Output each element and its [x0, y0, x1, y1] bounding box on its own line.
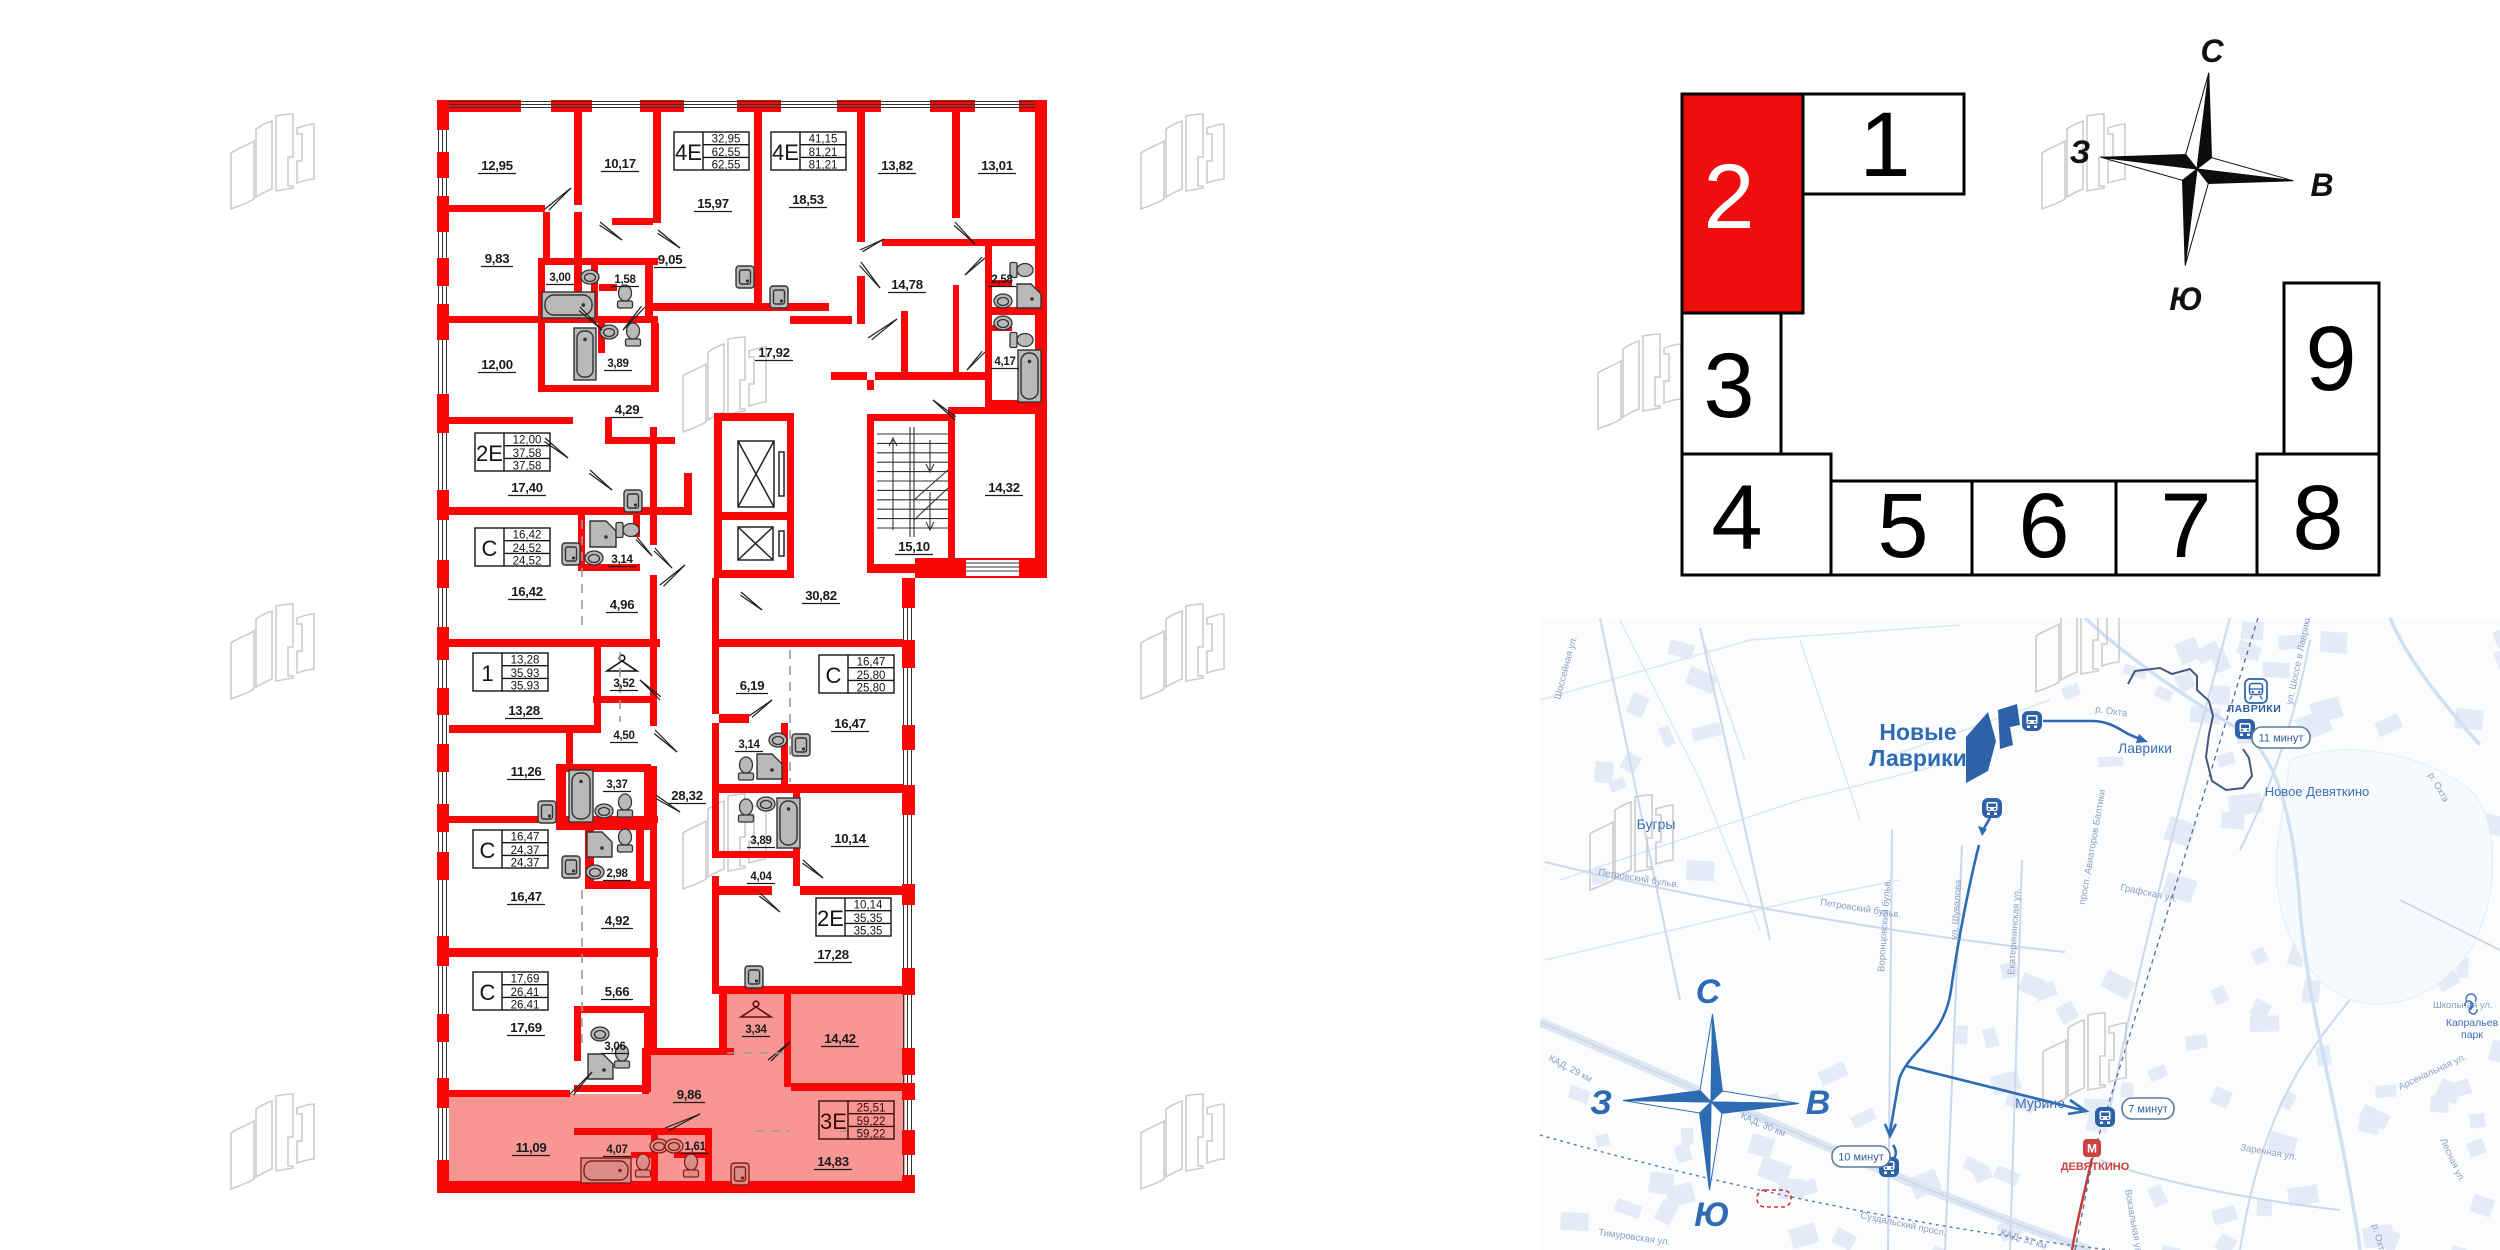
svg-text:9: 9 [2305, 308, 2356, 410]
svg-text:16,47: 16,47 [510, 889, 542, 904]
svg-text:7: 7 [2160, 475, 2211, 577]
svg-text:37,58: 37,58 [513, 448, 542, 460]
svg-text:З: З [2070, 134, 2091, 170]
svg-text:Новые: Новые [1879, 719, 1956, 745]
svg-text:13,28: 13,28 [511, 655, 540, 667]
svg-text:16,47: 16,47 [834, 716, 866, 731]
svg-text:17,69: 17,69 [511, 974, 540, 986]
svg-text:16,42: 16,42 [513, 530, 542, 542]
svg-text:13,01: 13,01 [981, 158, 1013, 173]
svg-text:3,37: 3,37 [606, 779, 627, 791]
svg-text:2: 2 [1703, 146, 1754, 248]
svg-text:С: С [480, 838, 496, 863]
svg-text:Школьная ул.: Школьная ул. [2433, 1000, 2493, 1011]
svg-text:З: З [1590, 1084, 1612, 1122]
svg-text:26,41: 26,41 [511, 987, 540, 999]
svg-text:С: С [480, 980, 496, 1005]
svg-text:13,82: 13,82 [881, 158, 913, 173]
svg-text:4,04: 4,04 [750, 871, 772, 883]
svg-text:5: 5 [1877, 475, 1928, 577]
svg-text:Бугры: Бугры [1637, 816, 1676, 832]
svg-text:1: 1 [481, 661, 493, 686]
svg-text:11,26: 11,26 [511, 764, 542, 779]
svg-text:35,35: 35,35 [854, 913, 883, 925]
svg-text:24,37: 24,37 [511, 845, 540, 857]
svg-text:3,14: 3,14 [738, 739, 760, 751]
svg-text:3Е: 3Е [820, 1109, 847, 1134]
svg-text:3,52: 3,52 [613, 678, 634, 690]
svg-text:18,53: 18,53 [792, 192, 824, 207]
svg-text:1,61: 1,61 [684, 1141, 706, 1153]
svg-text:6: 6 [2018, 475, 2069, 577]
svg-text:24,37: 24,37 [511, 858, 540, 870]
svg-text:2Е: 2Е [817, 906, 844, 931]
svg-text:41,15: 41,15 [809, 134, 838, 146]
svg-text:Мурино: Мурино [2015, 1095, 2065, 1111]
svg-text:14,83: 14,83 [817, 1154, 849, 1169]
svg-text:4,92: 4,92 [605, 913, 629, 928]
svg-text:14,42: 14,42 [824, 1031, 856, 1046]
svg-text:3,00: 3,00 [549, 272, 570, 284]
svg-text:4: 4 [1711, 467, 1762, 569]
svg-text:62,55: 62,55 [712, 160, 741, 172]
svg-text:М: М [2087, 1142, 2097, 1156]
svg-text:2,98: 2,98 [606, 868, 628, 880]
svg-text:9,86: 9,86 [677, 1087, 701, 1102]
svg-text:С: С [1696, 973, 1721, 1011]
svg-text:37,58: 37,58 [513, 461, 542, 473]
svg-text:32,95: 32,95 [712, 134, 741, 146]
svg-text:2Е: 2Е [476, 441, 503, 466]
svg-text:15,10: 15,10 [898, 539, 930, 554]
svg-text:3: 3 [1703, 335, 1754, 437]
svg-text:14,78: 14,78 [891, 277, 923, 292]
svg-text:12,95: 12,95 [481, 158, 513, 173]
svg-text:4Е: 4Е [675, 140, 702, 165]
svg-text:4,17: 4,17 [994, 356, 1015, 368]
svg-text:35,93: 35,93 [511, 681, 540, 693]
svg-text:ЛАВРИКИ: ЛАВРИКИ [2227, 703, 2282, 715]
svg-text:24,52: 24,52 [513, 556, 542, 568]
svg-text:81,21: 81,21 [809, 160, 838, 172]
svg-text:С: С [826, 663, 842, 688]
svg-text:6,19: 6,19 [740, 678, 764, 693]
svg-text:4Е: 4Е [772, 140, 799, 165]
svg-text:16,47: 16,47 [857, 657, 886, 669]
svg-text:4,50: 4,50 [613, 730, 634, 742]
svg-text:парк: парк [2461, 1029, 2483, 1041]
svg-text:10,14: 10,14 [834, 831, 866, 846]
svg-text:В: В [2310, 167, 2333, 203]
svg-text:Капральев: Капральев [2446, 1017, 2499, 1029]
svg-text:3,89: 3,89 [750, 835, 771, 847]
svg-text:4,96: 4,96 [610, 597, 634, 612]
svg-text:12,00: 12,00 [481, 357, 513, 372]
svg-text:2,58: 2,58 [991, 274, 1013, 286]
svg-text:12,00: 12,00 [513, 435, 542, 447]
svg-text:1,58: 1,58 [614, 274, 636, 286]
svg-text:25,80: 25,80 [857, 683, 886, 695]
svg-text:14,32: 14,32 [988, 480, 1020, 495]
svg-text:24,52: 24,52 [513, 543, 542, 555]
svg-text:13,28: 13,28 [508, 703, 540, 718]
svg-text:Ю: Ю [2169, 281, 2202, 317]
svg-text:16,47: 16,47 [511, 832, 540, 844]
svg-text:10,17: 10,17 [604, 156, 636, 171]
svg-text:17,69: 17,69 [510, 1020, 542, 1035]
svg-text:С: С [2200, 33, 2224, 69]
svg-text:26,41: 26,41 [511, 1000, 540, 1012]
svg-text:30,82: 30,82 [805, 588, 837, 603]
svg-text:8: 8 [2292, 467, 2343, 569]
svg-text:3,14: 3,14 [611, 554, 633, 566]
svg-text:17,92: 17,92 [758, 345, 790, 360]
svg-text:4,29: 4,29 [615, 402, 639, 417]
svg-text:81,21: 81,21 [809, 147, 838, 159]
svg-text:3,34: 3,34 [745, 1024, 767, 1036]
svg-text:9,05: 9,05 [658, 252, 682, 267]
svg-text:Лаврики: Лаврики [2118, 740, 2172, 756]
svg-text:35,35: 35,35 [854, 926, 883, 938]
svg-text:Ю: Ю [1694, 1196, 1729, 1234]
svg-text:В: В [1806, 1084, 1831, 1122]
svg-text:3,89: 3,89 [607, 358, 628, 370]
svg-text:17,40: 17,40 [511, 480, 543, 495]
svg-text:9,83: 9,83 [485, 251, 509, 266]
svg-text:7 минут: 7 минут [2128, 1104, 2168, 1116]
svg-text:25,51: 25,51 [857, 1103, 886, 1115]
svg-text:62,55: 62,55 [712, 147, 741, 159]
svg-text:С: С [482, 536, 498, 561]
svg-text:Лаврики: Лаврики [1869, 745, 1966, 771]
svg-text:1: 1 [1859, 94, 1910, 196]
svg-text:Новое Девяткино: Новое Девяткино [2265, 784, 2370, 799]
svg-text:10 минут: 10 минут [1838, 1152, 1884, 1164]
svg-text:3,06: 3,06 [604, 1041, 625, 1053]
svg-text:5,66: 5,66 [605, 984, 629, 999]
svg-text:25,80: 25,80 [857, 670, 886, 682]
svg-text:15,97: 15,97 [697, 196, 729, 211]
svg-text:4,07: 4,07 [606, 1144, 627, 1156]
svg-text:11 минут: 11 минут [2259, 733, 2304, 745]
svg-text:10,14: 10,14 [854, 900, 883, 912]
svg-text:11,09: 11,09 [516, 1140, 547, 1155]
svg-text:59,22: 59,22 [857, 1129, 886, 1141]
svg-text:ДЕВЯТКИНО: ДЕВЯТКИНО [2061, 1161, 2130, 1173]
svg-text:59,22: 59,22 [857, 1116, 886, 1128]
svg-text:35,93: 35,93 [511, 668, 540, 680]
svg-text:28,32: 28,32 [671, 788, 703, 803]
svg-text:17,28: 17,28 [817, 947, 849, 962]
svg-text:16,42: 16,42 [511, 584, 543, 599]
